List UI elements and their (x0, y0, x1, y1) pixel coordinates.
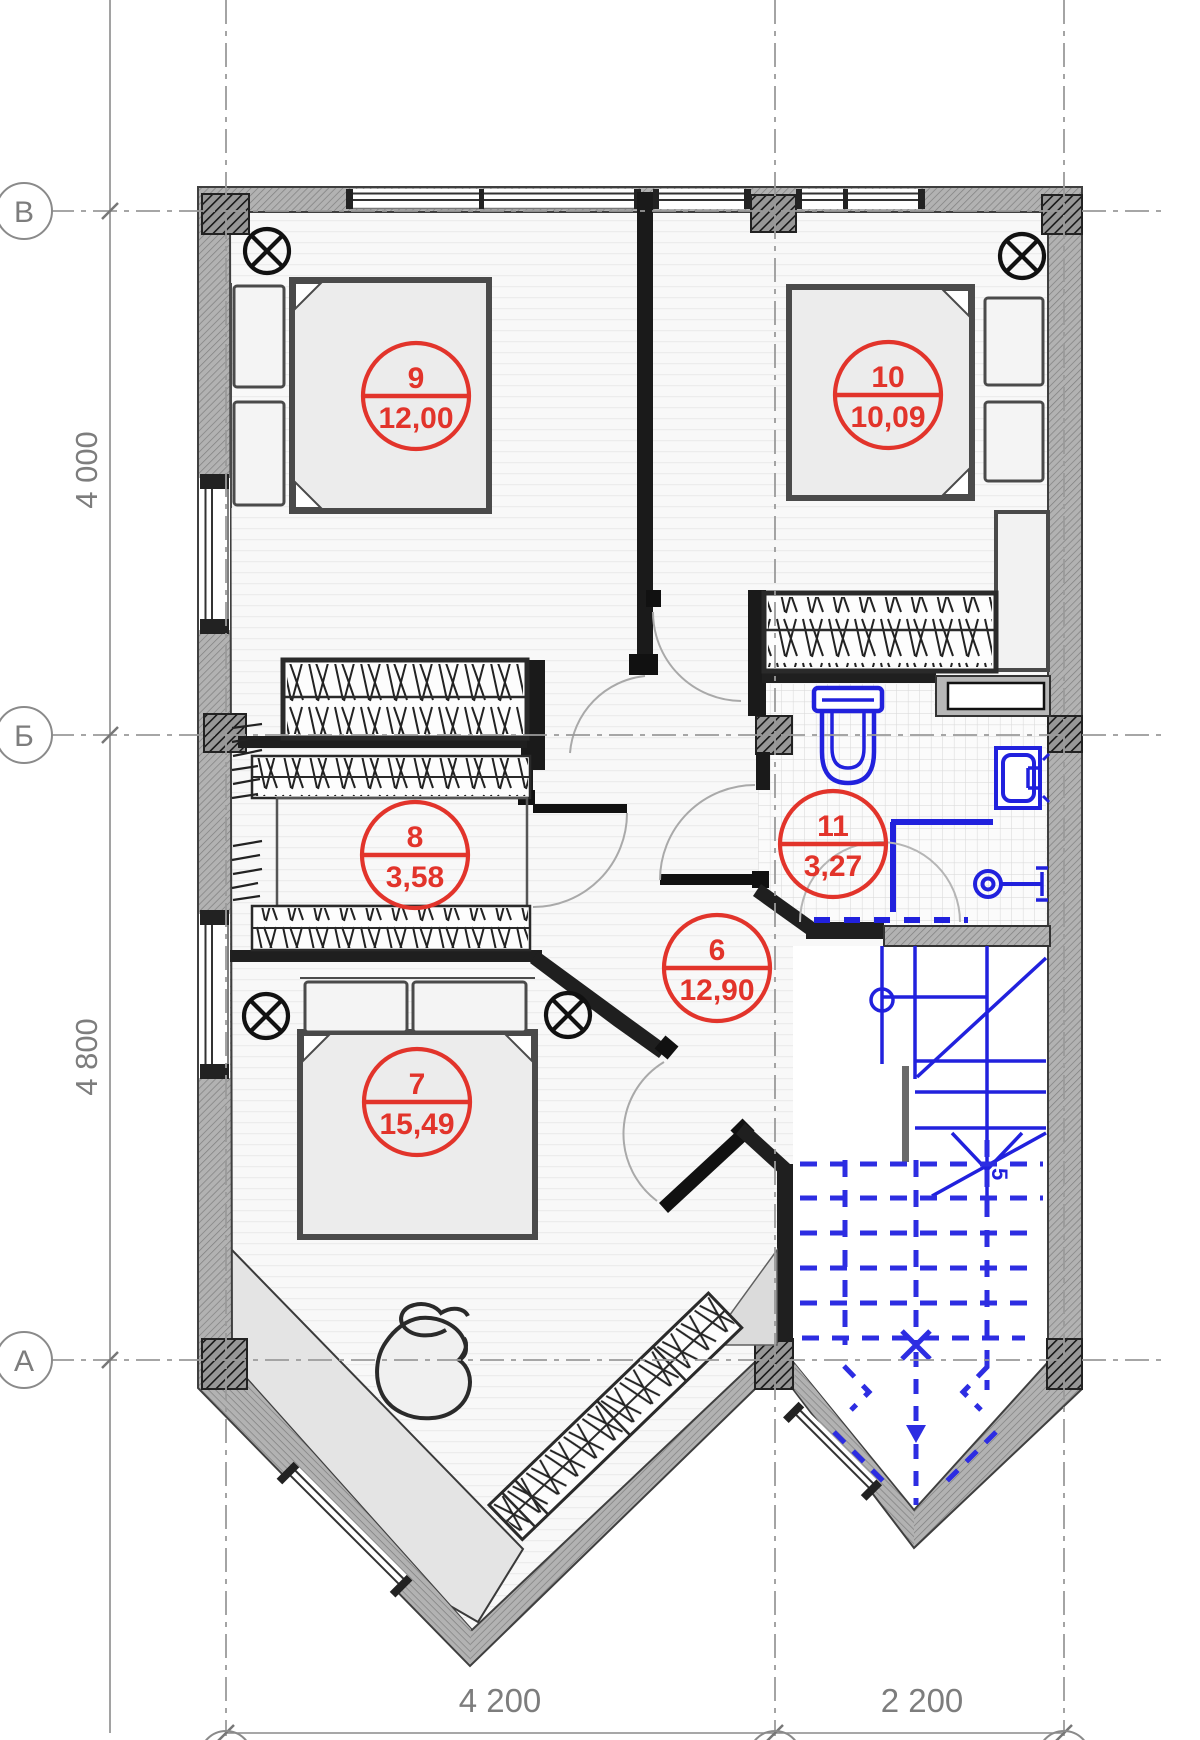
svg-text:4 000: 4 000 (69, 431, 104, 509)
svg-text:3,27: 3,27 (804, 850, 862, 883)
svg-text:12,00: 12,00 (378, 402, 453, 435)
svg-text:15,49: 15,49 (379, 1108, 454, 1141)
svg-text:7: 7 (409, 1068, 426, 1101)
svg-text:А: А (14, 1345, 34, 1378)
svg-text:4 200: 4 200 (459, 1682, 542, 1719)
svg-text:Б: Б (14, 720, 34, 753)
svg-text:В: В (14, 196, 34, 229)
svg-text:5: 5 (987, 1168, 1012, 1180)
svg-text:6: 6 (709, 934, 726, 967)
svg-text:10: 10 (871, 361, 904, 394)
svg-text:2 200: 2 200 (881, 1682, 964, 1719)
svg-text:8: 8 (407, 821, 424, 854)
svg-text:11: 11 (817, 810, 849, 843)
svg-text:3,58: 3,58 (386, 861, 444, 894)
svg-text:12,90: 12,90 (679, 974, 754, 1007)
svg-text:10,09: 10,09 (850, 401, 925, 434)
svg-text:9: 9 (408, 362, 425, 395)
svg-text:4 800: 4 800 (69, 1018, 104, 1096)
